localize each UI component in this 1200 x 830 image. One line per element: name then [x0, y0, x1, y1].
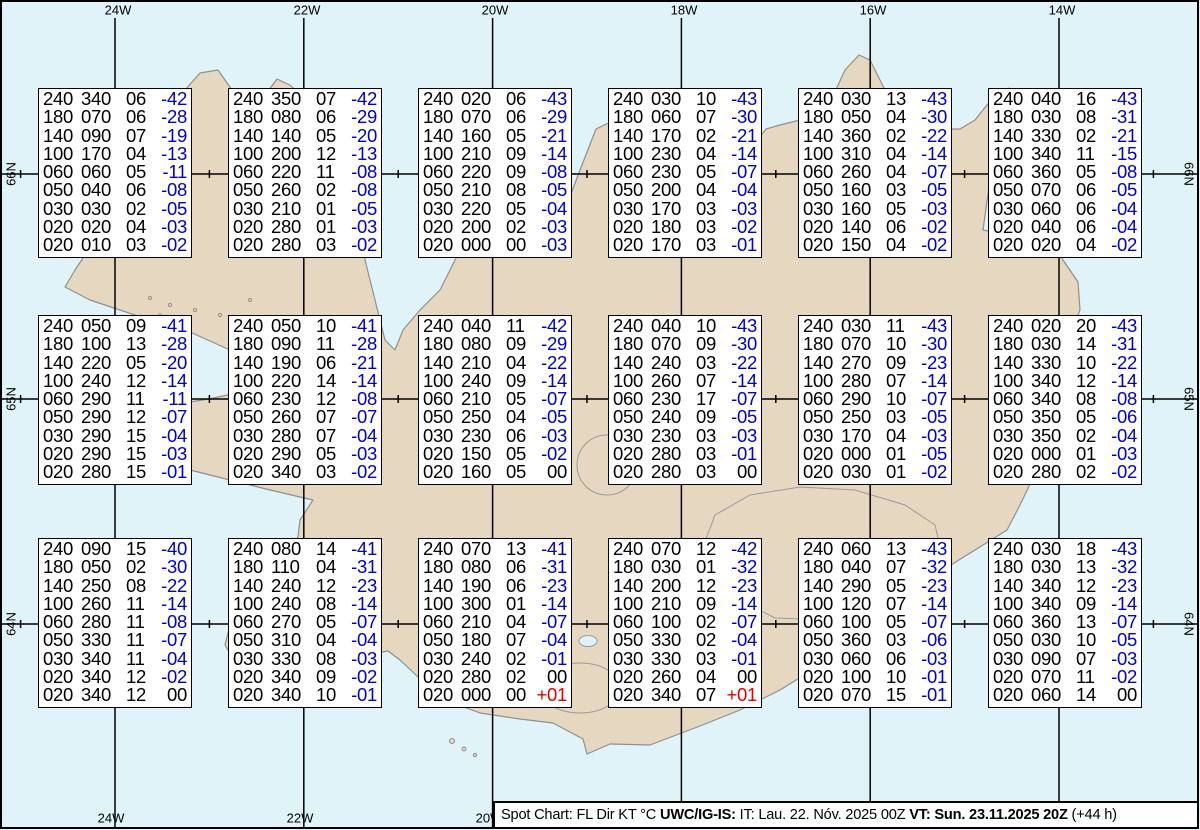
cell-fl: 020 [233, 463, 271, 481]
cell-temp: 00 [536, 463, 567, 481]
cell-temp: -31 [1106, 335, 1137, 353]
cell-kt: 00 [506, 236, 536, 254]
cell-dir: 030 [1031, 335, 1076, 353]
cell-kt: 03 [696, 463, 726, 481]
cell-kt: 04 [886, 108, 916, 126]
cell-fl: 020 [43, 686, 81, 704]
cell-kt: 02 [126, 558, 156, 576]
spot-row: 02000000-03 [423, 236, 567, 254]
spot-row: 18009011-28 [233, 335, 377, 353]
cell-kt: 03 [316, 236, 346, 254]
cell-temp: -02 [916, 463, 947, 481]
cell-kt: 07 [886, 558, 916, 576]
spot-row: 18007010-30 [803, 335, 947, 353]
cell-kt: 09 [506, 335, 536, 353]
cell-kt: 10 [886, 335, 916, 353]
longitude-label-bottom: 22W [287, 811, 314, 826]
spot-box-r1-c6: 24004016-4318003008-3114033002-211003401… [988, 88, 1142, 258]
cell-temp: -01 [156, 463, 187, 481]
cell-fl: 020 [43, 463, 81, 481]
spot-row: 18003008-31 [993, 108, 1137, 126]
cell-temp: -30 [916, 108, 947, 126]
cell-temp: -28 [156, 108, 187, 126]
cell-dir: 000 [461, 236, 506, 254]
cell-temp: -30 [726, 108, 757, 126]
cell-kt: 07 [696, 108, 726, 126]
cell-dir: 080 [461, 558, 506, 576]
spot-box-r2-c3: 24004011-4218008009-2914021004-221002400… [418, 315, 572, 485]
spot-box-r1-c2: 24035007-4218008006-2914014005-201002001… [228, 88, 382, 258]
cell-kt: 00 [506, 686, 536, 704]
cell-fl: 180 [803, 335, 841, 353]
cell-kt: 10 [316, 686, 346, 704]
cell-dir: 280 [651, 463, 696, 481]
cell-dir: 070 [461, 108, 506, 126]
cell-dir: 070 [841, 686, 886, 704]
cell-temp: -29 [346, 108, 377, 126]
cell-kt: 13 [1076, 558, 1106, 576]
cell-fl: 020 [803, 463, 841, 481]
cell-temp: -01 [346, 686, 377, 704]
cell-kt: 12 [126, 686, 156, 704]
spot-row: 0203401200 [43, 686, 187, 704]
spot-row: 02034010-01 [233, 686, 377, 704]
latitude-label-right: 65N [1182, 387, 1197, 411]
cell-dir: 020 [1031, 236, 1076, 254]
spot-row: 02007015-01 [803, 686, 947, 704]
cell-fl: 180 [993, 335, 1031, 353]
latitude-label-left: 65N [4, 387, 19, 411]
spot-box-r3-c5: 24006013-4318004007-3214029005-231001200… [798, 538, 952, 708]
spot-row: 0202800300 [613, 463, 757, 481]
cell-fl: 180 [43, 108, 81, 126]
cell-temp: +01 [726, 686, 757, 704]
cell-fl: 180 [613, 558, 651, 576]
cell-temp: -02 [916, 236, 947, 254]
spot-row: 0200601400 [993, 686, 1137, 704]
cell-dir: 070 [651, 335, 696, 353]
longitude-label-top: 24W [105, 3, 132, 18]
legend-segment: (+44 h) [1068, 807, 1117, 823]
spot-box-r2-c5: 24003011-4318007010-3014027009-231002800… [798, 315, 952, 485]
legend-segment: VT: Sun. 23.11.2025 20Z [909, 807, 1067, 823]
cell-kt: 06 [126, 108, 156, 126]
cell-fl: 020 [233, 686, 271, 704]
cell-temp: +01 [536, 686, 567, 704]
spot-row: 18008009-29 [423, 335, 567, 353]
spot-row: 18005004-30 [803, 108, 947, 126]
cell-temp: -02 [346, 236, 377, 254]
cell-kt: 11 [316, 335, 346, 353]
cell-fl: 020 [803, 236, 841, 254]
cell-temp: -30 [726, 335, 757, 353]
cell-dir: 080 [271, 108, 316, 126]
longitude-label-top: 20W [482, 3, 509, 18]
cell-kt: 08 [1076, 108, 1106, 126]
spot-box-r3-c6: 24003018-4318003013-3214034012-231003400… [988, 538, 1142, 708]
spot-row: 18006007-30 [613, 108, 757, 126]
spot-row: 18008006-31 [423, 558, 567, 576]
cell-dir: 150 [841, 236, 886, 254]
cell-dir: 030 [1031, 558, 1076, 576]
legend-segment: IT: Lau. 22. Nóv. 2025 00Z [736, 807, 909, 823]
legend-segment: UWC/IG-IS: [660, 807, 736, 823]
spot-row: 02002004-02 [993, 236, 1137, 254]
spot-row: 02028003-02 [233, 236, 377, 254]
cell-fl: 020 [43, 236, 81, 254]
cell-kt: 01 [886, 463, 916, 481]
cell-temp: -03 [536, 236, 567, 254]
latitude-label-right: 66N [1182, 162, 1197, 186]
cell-kt: 04 [316, 558, 346, 576]
cell-fl: 020 [803, 686, 841, 704]
cell-fl: 020 [993, 686, 1031, 704]
cell-kt: 03 [126, 236, 156, 254]
spot-row: 02001003-02 [43, 236, 187, 254]
cell-fl: 180 [43, 335, 81, 353]
cell-fl: 180 [233, 558, 271, 576]
spot-row: 18003014-31 [993, 335, 1137, 353]
cell-temp: -32 [1106, 558, 1137, 576]
cell-kt: 04 [1076, 236, 1106, 254]
spot-box-r1-c3: 24002006-4318007006-2914016005-211002100… [418, 88, 572, 258]
cell-dir: 280 [81, 463, 126, 481]
cell-temp: -02 [1106, 236, 1137, 254]
spot-box-r2-c2: 24005010-4118009011-2814019006-211002201… [228, 315, 382, 485]
longitude-label-top: 22W [294, 3, 321, 18]
spot-box-r1-c4: 24003010-4318006007-3014017002-211002300… [608, 88, 762, 258]
spot-row: 18004007-32 [803, 558, 947, 576]
spot-row: 02034007+01 [613, 686, 757, 704]
spot-box-r1-c5: 24003013-4318005004-3014036002-221003100… [798, 88, 952, 258]
cell-kt: 13 [126, 335, 156, 353]
cell-fl: 180 [43, 558, 81, 576]
cell-temp: -31 [346, 558, 377, 576]
cell-dir: 050 [81, 558, 126, 576]
cell-kt: 01 [696, 558, 726, 576]
cell-fl: 020 [613, 463, 651, 481]
longitude-label-bottom: 24W [98, 811, 125, 826]
cell-dir: 340 [81, 686, 126, 704]
cell-dir: 280 [1031, 463, 1076, 481]
cell-dir: 170 [651, 236, 696, 254]
cell-kt: 14 [1076, 335, 1106, 353]
cell-fl: 020 [423, 236, 461, 254]
latitude-label-left: 66N [4, 162, 19, 186]
cell-dir: 070 [841, 335, 886, 353]
cell-temp: -31 [1106, 108, 1137, 126]
cell-kt: 06 [506, 558, 536, 576]
spot-row: 18011004-31 [233, 558, 377, 576]
cell-dir: 030 [651, 558, 696, 576]
cell-kt: 06 [506, 108, 536, 126]
lake [579, 636, 597, 647]
cell-temp: -02 [1106, 463, 1137, 481]
cell-kt: 03 [696, 236, 726, 254]
spot-chart-iceland: 24W22W20W18W16W14W24W22W20W66N65N64N66N6… [0, 0, 1200, 830]
cell-dir: 100 [81, 335, 126, 353]
cell-temp: -01 [916, 686, 947, 704]
cell-temp: -30 [156, 558, 187, 576]
cell-kt: 03 [316, 463, 346, 481]
spot-box-r3-c3: 24007013-4118008006-3114019006-231003000… [418, 538, 572, 708]
spot-row: 0201600500 [423, 463, 567, 481]
cell-fl: 020 [423, 463, 461, 481]
cell-fl: 020 [233, 236, 271, 254]
cell-temp: -31 [536, 558, 567, 576]
cell-temp: 00 [726, 463, 757, 481]
spot-row: 02000000+01 [423, 686, 567, 704]
cell-fl: 180 [613, 335, 651, 353]
cell-fl: 180 [423, 335, 461, 353]
cell-fl: 020 [613, 236, 651, 254]
spot-row: 18008006-29 [233, 108, 377, 126]
cell-dir: 080 [461, 335, 506, 353]
cell-dir: 070 [81, 108, 126, 126]
spot-row: 02034003-02 [233, 463, 377, 481]
spot-row: 02003001-02 [803, 463, 947, 481]
cell-fl: 180 [803, 108, 841, 126]
spot-row: 02028002-02 [993, 463, 1137, 481]
cell-kt: 05 [506, 463, 536, 481]
cell-temp: -02 [156, 236, 187, 254]
cell-kt: 04 [886, 236, 916, 254]
cell-dir: 340 [271, 463, 316, 481]
cell-temp: 00 [156, 686, 187, 704]
cell-dir: 010 [81, 236, 126, 254]
spot-row: 18003001-32 [613, 558, 757, 576]
cell-kt: 09 [696, 335, 726, 353]
cell-dir: 280 [271, 236, 316, 254]
spot-row: 02015004-02 [803, 236, 947, 254]
cell-temp: -32 [916, 558, 947, 576]
chart-legend-bar: Spot Chart: FL Dir KT °C UWC/IG-IS: IT: … [493, 801, 1199, 829]
spot-box-r2-c1: 24005009-4118010013-2814022005-201002401… [38, 315, 192, 485]
spot-row: 18003013-32 [993, 558, 1137, 576]
spot-row: 02028015-01 [43, 463, 187, 481]
spot-box-r3-c1: 24009015-4018005002-3014025008-221002601… [38, 538, 192, 708]
cell-dir: 060 [1031, 686, 1076, 704]
latitude-label-left: 64N [4, 612, 19, 636]
cell-dir: 050 [841, 108, 886, 126]
cell-dir: 060 [651, 108, 696, 126]
cell-dir: 000 [461, 686, 506, 704]
cell-temp: -29 [536, 108, 567, 126]
cell-temp: -30 [916, 335, 947, 353]
longitude-label-top: 16W [860, 3, 887, 18]
cell-fl: 180 [993, 108, 1031, 126]
cell-dir: 090 [271, 335, 316, 353]
cell-kt: 07 [696, 686, 726, 704]
cell-fl: 180 [613, 108, 651, 126]
cell-fl: 020 [423, 686, 461, 704]
cell-dir: 160 [461, 463, 506, 481]
cell-temp: -02 [346, 463, 377, 481]
spot-row: 18007006-28 [43, 108, 187, 126]
cell-fl: 180 [803, 558, 841, 576]
legend-segment: Spot Chart: FL Dir KT °C [501, 807, 660, 823]
cell-temp: -32 [726, 558, 757, 576]
spot-row: 18007006-29 [423, 108, 567, 126]
cell-fl: 180 [423, 558, 461, 576]
latitude-label-right: 64N [1182, 612, 1197, 636]
cell-temp: -29 [536, 335, 567, 353]
cell-kt: 02 [1076, 463, 1106, 481]
cell-dir: 030 [1031, 108, 1076, 126]
cell-fl: 180 [993, 558, 1031, 576]
cell-fl: 180 [233, 108, 271, 126]
spot-box-r3-c2: 24008014-4118011004-3114024012-231002400… [228, 538, 382, 708]
spot-row: 18005002-30 [43, 558, 187, 576]
spot-row: 02017003-01 [613, 236, 757, 254]
cell-dir: 340 [271, 686, 316, 704]
cell-dir: 340 [651, 686, 696, 704]
spot-row: 18010013-28 [43, 335, 187, 353]
cell-fl: 180 [423, 108, 461, 126]
cell-dir: 030 [841, 463, 886, 481]
cell-temp: -28 [156, 335, 187, 353]
longitude-label-top: 18W [671, 3, 698, 18]
cell-kt: 06 [316, 108, 346, 126]
cell-kt: 14 [1076, 686, 1106, 704]
cell-temp: -01 [726, 236, 757, 254]
cell-kt: 15 [126, 463, 156, 481]
cell-kt: 15 [886, 686, 916, 704]
spot-box-r1-c1: 24034006-4218007006-2814009007-191001700… [38, 88, 192, 258]
cell-temp: 00 [1106, 686, 1137, 704]
longitude-label-top: 14W [1049, 3, 1076, 18]
cell-temp: -28 [346, 335, 377, 353]
cell-dir: 040 [841, 558, 886, 576]
spot-box-r2-c6: 24002020-4318003014-3114033010-221003401… [988, 315, 1142, 485]
spot-box-r3-c4: 24007012-4218003001-3214020012-231002100… [608, 538, 762, 708]
spot-row: 18007009-30 [613, 335, 757, 353]
cell-dir: 110 [271, 558, 316, 576]
cell-fl: 020 [993, 463, 1031, 481]
cell-fl: 180 [233, 335, 271, 353]
spot-box-r2-c4: 24004010-4318007009-3014024003-221002600… [608, 315, 762, 485]
cell-fl: 020 [993, 236, 1031, 254]
cell-fl: 020 [613, 686, 651, 704]
